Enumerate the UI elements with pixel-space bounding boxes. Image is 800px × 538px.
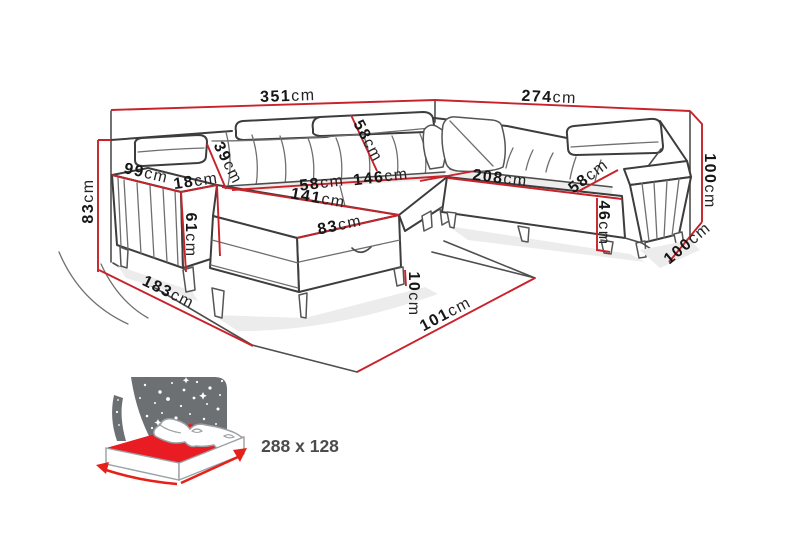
svg-text:46cm: 46cm — [595, 200, 612, 245]
svg-text:100cm: 100cm — [701, 153, 718, 209]
svg-text:61cm: 61cm — [182, 212, 199, 257]
svg-text:83cm: 83cm — [80, 178, 97, 223]
svg-text:10cm: 10cm — [405, 271, 422, 316]
svg-text:351cm: 351cm — [260, 87, 316, 106]
svg-text:288 x 128: 288 x 128 — [261, 436, 339, 456]
svg-text:274cm: 274cm — [521, 88, 577, 107]
